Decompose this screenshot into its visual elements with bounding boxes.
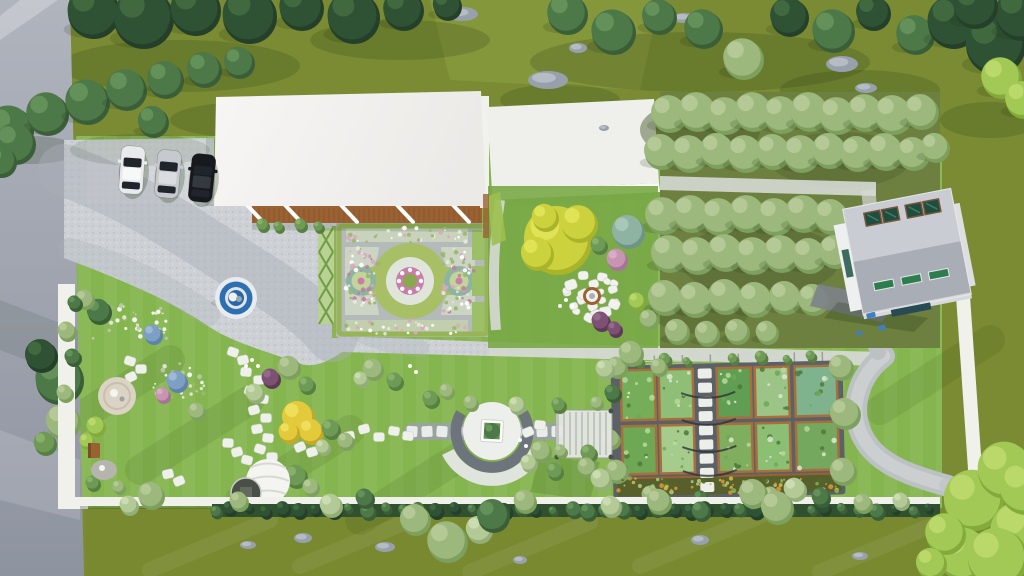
tree-puff-light — [280, 357, 289, 366]
speckle-dot — [124, 327, 127, 330]
tree-puff — [546, 462, 561, 477]
tree-puff-light — [145, 326, 153, 334]
veg-bed — [756, 423, 791, 472]
tree-puff-light — [794, 95, 810, 111]
flagstone — [578, 271, 589, 280]
car-windshield — [193, 165, 212, 176]
tree-puff — [650, 358, 665, 373]
tree-puff-light — [910, 507, 914, 511]
speckle-dot — [398, 232, 402, 236]
speckle-dot — [458, 230, 462, 234]
speckle-dot — [442, 309, 446, 313]
tree-puff-light — [227, 49, 240, 62]
speckle-dot — [627, 479, 629, 481]
fire-bowl-center — [589, 293, 595, 299]
tree-puff-light — [738, 95, 754, 111]
speckle-dot — [182, 396, 185, 399]
tree-puff-light — [929, 516, 946, 533]
speckle-dot — [442, 263, 444, 265]
tree-puff-light — [70, 83, 88, 101]
tree-puff-light — [677, 198, 692, 213]
veg-bed — [621, 370, 656, 421]
tree-puff-light — [789, 198, 804, 213]
speckle-dot — [659, 483, 664, 488]
flower-dot — [570, 304, 574, 308]
tree-puff — [695, 321, 718, 344]
tree-puff — [87, 417, 104, 434]
speckle-dot — [136, 324, 139, 327]
tree-puff-light — [688, 12, 704, 28]
speckle-dot — [417, 238, 420, 241]
tree-puff-light — [711, 237, 726, 252]
tree-puff — [210, 506, 221, 517]
speckle-dot — [732, 484, 734, 486]
speckle-dot — [359, 263, 364, 268]
tree-puff-light — [741, 285, 755, 299]
tree-puff — [604, 384, 619, 399]
tree-puff-light — [983, 446, 1007, 470]
speckle-dot — [469, 266, 472, 269]
speckle-dot — [387, 327, 390, 330]
flower-dot — [558, 304, 562, 308]
speckle-dot — [162, 311, 165, 314]
rock-light — [854, 553, 864, 557]
speckle-dot — [463, 239, 467, 243]
rock-light — [600, 126, 606, 129]
planter-tree-light — [486, 425, 493, 432]
tree-puff — [313, 221, 322, 230]
tree-puff — [353, 371, 366, 384]
tree-puff-light — [322, 495, 331, 504]
tree-puff — [591, 9, 632, 50]
speckle-dot — [346, 235, 351, 240]
speckle-dot — [463, 325, 467, 329]
tree-puff-light — [786, 479, 795, 488]
speckle-dot — [353, 300, 357, 304]
car-windshield — [159, 161, 178, 172]
speckle-dot — [407, 332, 410, 335]
path-stone — [699, 411, 713, 421]
tree-puff-light — [565, 208, 580, 223]
tree-puff — [320, 494, 341, 515]
speckle-dot — [449, 332, 452, 335]
tree-puff-light — [907, 97, 921, 111]
tree-puff — [302, 478, 317, 493]
tree-puff — [532, 204, 556, 228]
speckle-dot — [462, 261, 465, 264]
tree-puff-light — [81, 435, 87, 441]
speckle-dot — [359, 294, 362, 297]
speckle-dot — [722, 484, 725, 487]
speckle-dot — [361, 252, 363, 254]
tree-puff — [830, 458, 854, 482]
tree-puff-light — [556, 445, 561, 450]
tree-puff-light — [645, 2, 659, 16]
tree-puff — [684, 9, 720, 45]
speckle-dot — [349, 297, 352, 300]
tree-puff — [65, 79, 106, 120]
tree-puff-light — [711, 282, 725, 296]
tree-puff — [514, 490, 535, 511]
tree-puff — [812, 488, 829, 505]
speckle-dot — [800, 478, 802, 480]
speckle-dot — [151, 311, 154, 314]
speckle-dot — [454, 238, 456, 240]
speckle-dot — [781, 479, 783, 481]
stepping-stone — [222, 438, 233, 447]
speckle-dot — [154, 311, 157, 314]
tree-puff — [739, 479, 765, 505]
tree-puff-light — [705, 201, 720, 216]
speckle-dot — [192, 383, 196, 387]
speckle-dot — [187, 372, 192, 377]
speckle-dot — [119, 303, 124, 308]
tree-puff — [924, 504, 932, 512]
speckle-dot — [442, 255, 445, 258]
stepping-stone — [240, 367, 252, 377]
speckle-dot — [818, 479, 822, 483]
tree-puff — [892, 492, 907, 507]
rock-light — [693, 536, 704, 542]
path-stone — [698, 383, 712, 393]
tree-puff — [812, 133, 844, 165]
tree-puff-light — [843, 139, 857, 153]
speckle-dot — [728, 490, 732, 494]
speckle-dot — [356, 326, 359, 329]
stepping-stone — [162, 468, 175, 479]
tree-puff-light — [582, 446, 589, 453]
tree-puff-light — [274, 222, 278, 226]
petal — [397, 279, 401, 283]
tree-puff — [25, 339, 55, 369]
speckle-dot — [441, 291, 445, 295]
tree-puff-light — [339, 434, 346, 441]
speckle-dot — [357, 240, 359, 242]
tree-puff-light — [767, 99, 782, 114]
tree-puff — [644, 134, 676, 166]
speckle-dot — [830, 482, 833, 485]
speckle-dot — [115, 318, 119, 322]
tree-puff — [700, 133, 732, 165]
tree-puff-light — [711, 100, 726, 115]
tree-puff — [422, 390, 437, 405]
tree-puff-light — [231, 493, 239, 501]
speckle-dot — [366, 298, 370, 302]
tree-puff-light — [548, 464, 555, 471]
petal — [400, 271, 404, 275]
tree-puff — [439, 383, 452, 396]
speckle-dot — [696, 482, 699, 485]
tree-puff-light — [592, 238, 599, 245]
speckle-dot — [457, 236, 460, 239]
speckle-dot — [431, 234, 435, 238]
speckle-dot — [361, 287, 366, 292]
tree-puff-light — [468, 505, 472, 509]
speckle-dot — [451, 260, 455, 264]
speckle-dot — [373, 294, 376, 297]
speckle-dot — [164, 320, 167, 323]
tree-puff — [315, 439, 328, 452]
tree-puff — [508, 396, 523, 411]
tree-puff-light — [641, 311, 649, 319]
speckle-dot — [159, 307, 162, 310]
tree-puff — [601, 496, 620, 515]
tree-puff-light — [424, 392, 431, 399]
tree-puff-light — [534, 206, 545, 217]
speckle-dot — [454, 306, 458, 310]
path-stone — [436, 426, 448, 438]
tree-puff-light — [169, 372, 177, 380]
tree-puff — [155, 387, 168, 400]
tree-puff-light — [516, 491, 525, 500]
tree-puff — [837, 503, 845, 511]
car-rear-window — [122, 181, 140, 189]
speckle-dot — [382, 326, 385, 329]
tree-puff-light — [925, 504, 929, 508]
tree-puff-light — [66, 350, 73, 357]
speckle-dot — [763, 478, 768, 483]
speckle-dot — [394, 324, 396, 326]
speckle-dot — [455, 296, 459, 300]
tree-puff-light — [510, 398, 517, 405]
tree-puff-light — [603, 497, 611, 505]
speckle-dot — [702, 480, 706, 484]
tree-puff-light — [121, 497, 129, 505]
speckle-dot — [360, 303, 364, 307]
speckle-dot — [741, 479, 743, 481]
petal — [408, 290, 412, 294]
speckle-dot — [201, 391, 206, 396]
speckle-dot — [453, 248, 455, 250]
tree-puff — [921, 133, 947, 159]
tree-puff — [904, 94, 936, 126]
tree-puff-light — [1009, 84, 1024, 99]
tree-puff-light — [157, 389, 163, 395]
tree-puff — [628, 292, 643, 307]
tree-puff-light — [787, 138, 802, 153]
path-stone — [421, 426, 433, 438]
speckle-dot — [421, 325, 423, 327]
tree-puff — [259, 505, 270, 516]
speckle-dot — [461, 297, 463, 299]
car-windshield — [123, 157, 142, 167]
tree-puff-light — [88, 418, 96, 426]
tree-puff-light — [739, 240, 754, 255]
veg-bed — [659, 369, 694, 420]
tree-puff-light — [693, 503, 701, 511]
speckle-dot — [367, 255, 370, 258]
speckle-dot — [733, 491, 736, 494]
tree-puff — [549, 506, 557, 514]
stepping-stone — [388, 426, 400, 437]
tree-puff — [273, 221, 282, 230]
stepping-stone — [251, 424, 264, 435]
fountain-sculpture-shade — [236, 296, 242, 302]
planter-tree — [484, 423, 500, 439]
tree-puff-light — [403, 506, 416, 519]
speckle-dot — [616, 488, 620, 492]
speckle-dot — [362, 296, 364, 298]
tree-puff-light — [141, 108, 154, 121]
speckle-dot — [383, 332, 386, 335]
tree-puff-light — [924, 135, 936, 147]
tree-puff — [463, 395, 476, 408]
tree-puff-light — [323, 421, 331, 429]
speckle-dot — [825, 483, 827, 485]
tree-puff — [580, 503, 595, 518]
tree-puff-light — [190, 55, 204, 69]
tree-puff-light — [764, 494, 777, 507]
tree-puff — [561, 205, 595, 239]
flower-dot — [244, 364, 248, 368]
tree-puff-light — [974, 533, 999, 558]
tree-puff-light — [767, 238, 782, 253]
tree-puff-light — [822, 238, 835, 251]
speckle-dot — [374, 235, 377, 238]
tree-puff-light — [761, 201, 776, 216]
speckle-dot — [425, 326, 429, 330]
tree-puff — [344, 503, 352, 511]
rock-light — [829, 58, 848, 67]
tree-puff-light — [30, 96, 48, 114]
speckle-dot — [350, 263, 355, 268]
tree-puff-light — [801, 286, 814, 299]
tree-puff — [276, 501, 289, 514]
speckle-dot — [401, 329, 403, 331]
tree-puff-light — [655, 98, 670, 113]
tree-puff — [896, 15, 932, 51]
flower-dot — [524, 444, 528, 448]
tree-puff — [854, 494, 871, 511]
speckle-dot — [365, 240, 367, 242]
rock-light — [514, 557, 522, 561]
tree-puff-light — [727, 41, 744, 58]
main-building-roof — [214, 91, 486, 206]
path-stone — [700, 454, 714, 464]
speckle-dot — [162, 327, 166, 331]
tree-puff — [138, 482, 162, 506]
tree-puff — [590, 236, 605, 251]
tree-puff — [386, 372, 401, 387]
tree-puff-light — [87, 477, 93, 483]
speckle-dot — [452, 326, 457, 331]
side-circle-left-dot — [358, 278, 365, 285]
speckle-dot — [189, 367, 192, 370]
planter-edge — [483, 194, 489, 238]
speckle-dot — [721, 480, 725, 484]
speckle-dot — [195, 390, 198, 393]
tree-puff — [224, 47, 252, 75]
speckle-dot — [355, 321, 358, 324]
tree-puff-light — [247, 385, 255, 393]
tree-puff — [520, 454, 535, 469]
tree-puff-light — [649, 491, 659, 501]
speckle-dot — [387, 229, 390, 232]
flower-dot — [250, 358, 254, 362]
speckle-dot — [634, 477, 636, 479]
tree-puff-light — [549, 507, 552, 510]
speckle-dot — [835, 486, 837, 488]
patio-item — [120, 397, 125, 402]
tree-puff-light — [317, 441, 323, 447]
tree-puff-light — [69, 297, 75, 303]
speckle-dot — [460, 255, 465, 260]
tree-puff-light — [832, 460, 843, 471]
tree-puff-light — [450, 503, 455, 508]
tree-puff-light — [655, 238, 670, 253]
stepping-stone — [260, 413, 271, 422]
speckle-dot — [367, 287, 372, 292]
speckle-dot — [178, 362, 181, 365]
tree-puff-light — [311, 505, 315, 509]
speckle-dot — [442, 285, 447, 290]
speckle-dot — [200, 381, 204, 385]
tree-puff-light — [151, 64, 166, 79]
tree-puff — [551, 397, 564, 410]
speckle-dot — [152, 386, 154, 388]
tree-puff — [909, 506, 918, 515]
tree-puff — [592, 312, 609, 329]
flower-dot — [564, 298, 568, 302]
tree-puff — [756, 321, 777, 342]
speckle-dot — [375, 261, 380, 266]
speckle-dot — [444, 229, 446, 231]
tree-puff-light — [533, 442, 541, 450]
tree-puff — [144, 325, 161, 342]
speckle-dot — [674, 483, 677, 486]
bench — [90, 443, 100, 458]
speckle-dot — [107, 329, 110, 332]
tree-puff-light — [721, 504, 726, 509]
tree-puff-light — [140, 484, 151, 495]
tree-puff-light — [567, 503, 573, 509]
speckle-dot — [373, 301, 376, 304]
car-roof — [158, 171, 177, 185]
speckle-dot — [370, 258, 372, 260]
tree-puff — [34, 432, 55, 453]
speckle-dot — [666, 485, 669, 488]
mandala-core — [403, 274, 417, 288]
patio-table — [110, 389, 118, 397]
speckle-dot — [348, 290, 353, 295]
rock-light — [242, 542, 252, 546]
speckle-dot — [691, 486, 694, 489]
speckle-dot — [452, 301, 454, 303]
tree-puff — [708, 279, 740, 311]
speckle-dot — [467, 271, 470, 274]
tree-puff — [449, 502, 459, 512]
tree-puff — [590, 396, 601, 407]
tree-puff — [640, 310, 657, 327]
speckle-dot — [134, 313, 136, 315]
tree-puff — [188, 402, 203, 417]
tree-puff-light — [296, 219, 301, 224]
speckle-dot — [379, 331, 383, 335]
tree-puff — [26, 92, 65, 131]
tree-puff-light — [817, 202, 831, 216]
speckle-dot — [458, 274, 461, 277]
speckle-dot — [351, 255, 354, 258]
speckle-dot — [92, 337, 95, 340]
speckle-dot — [407, 233, 411, 237]
tree-puff-light — [581, 505, 588, 512]
tree-puff-light — [345, 504, 348, 507]
tree-puff — [531, 441, 550, 460]
tree-puff — [262, 369, 279, 386]
speckle-dot — [408, 319, 412, 323]
speckle-dot — [344, 286, 349, 291]
speckle-dot — [431, 324, 434, 327]
